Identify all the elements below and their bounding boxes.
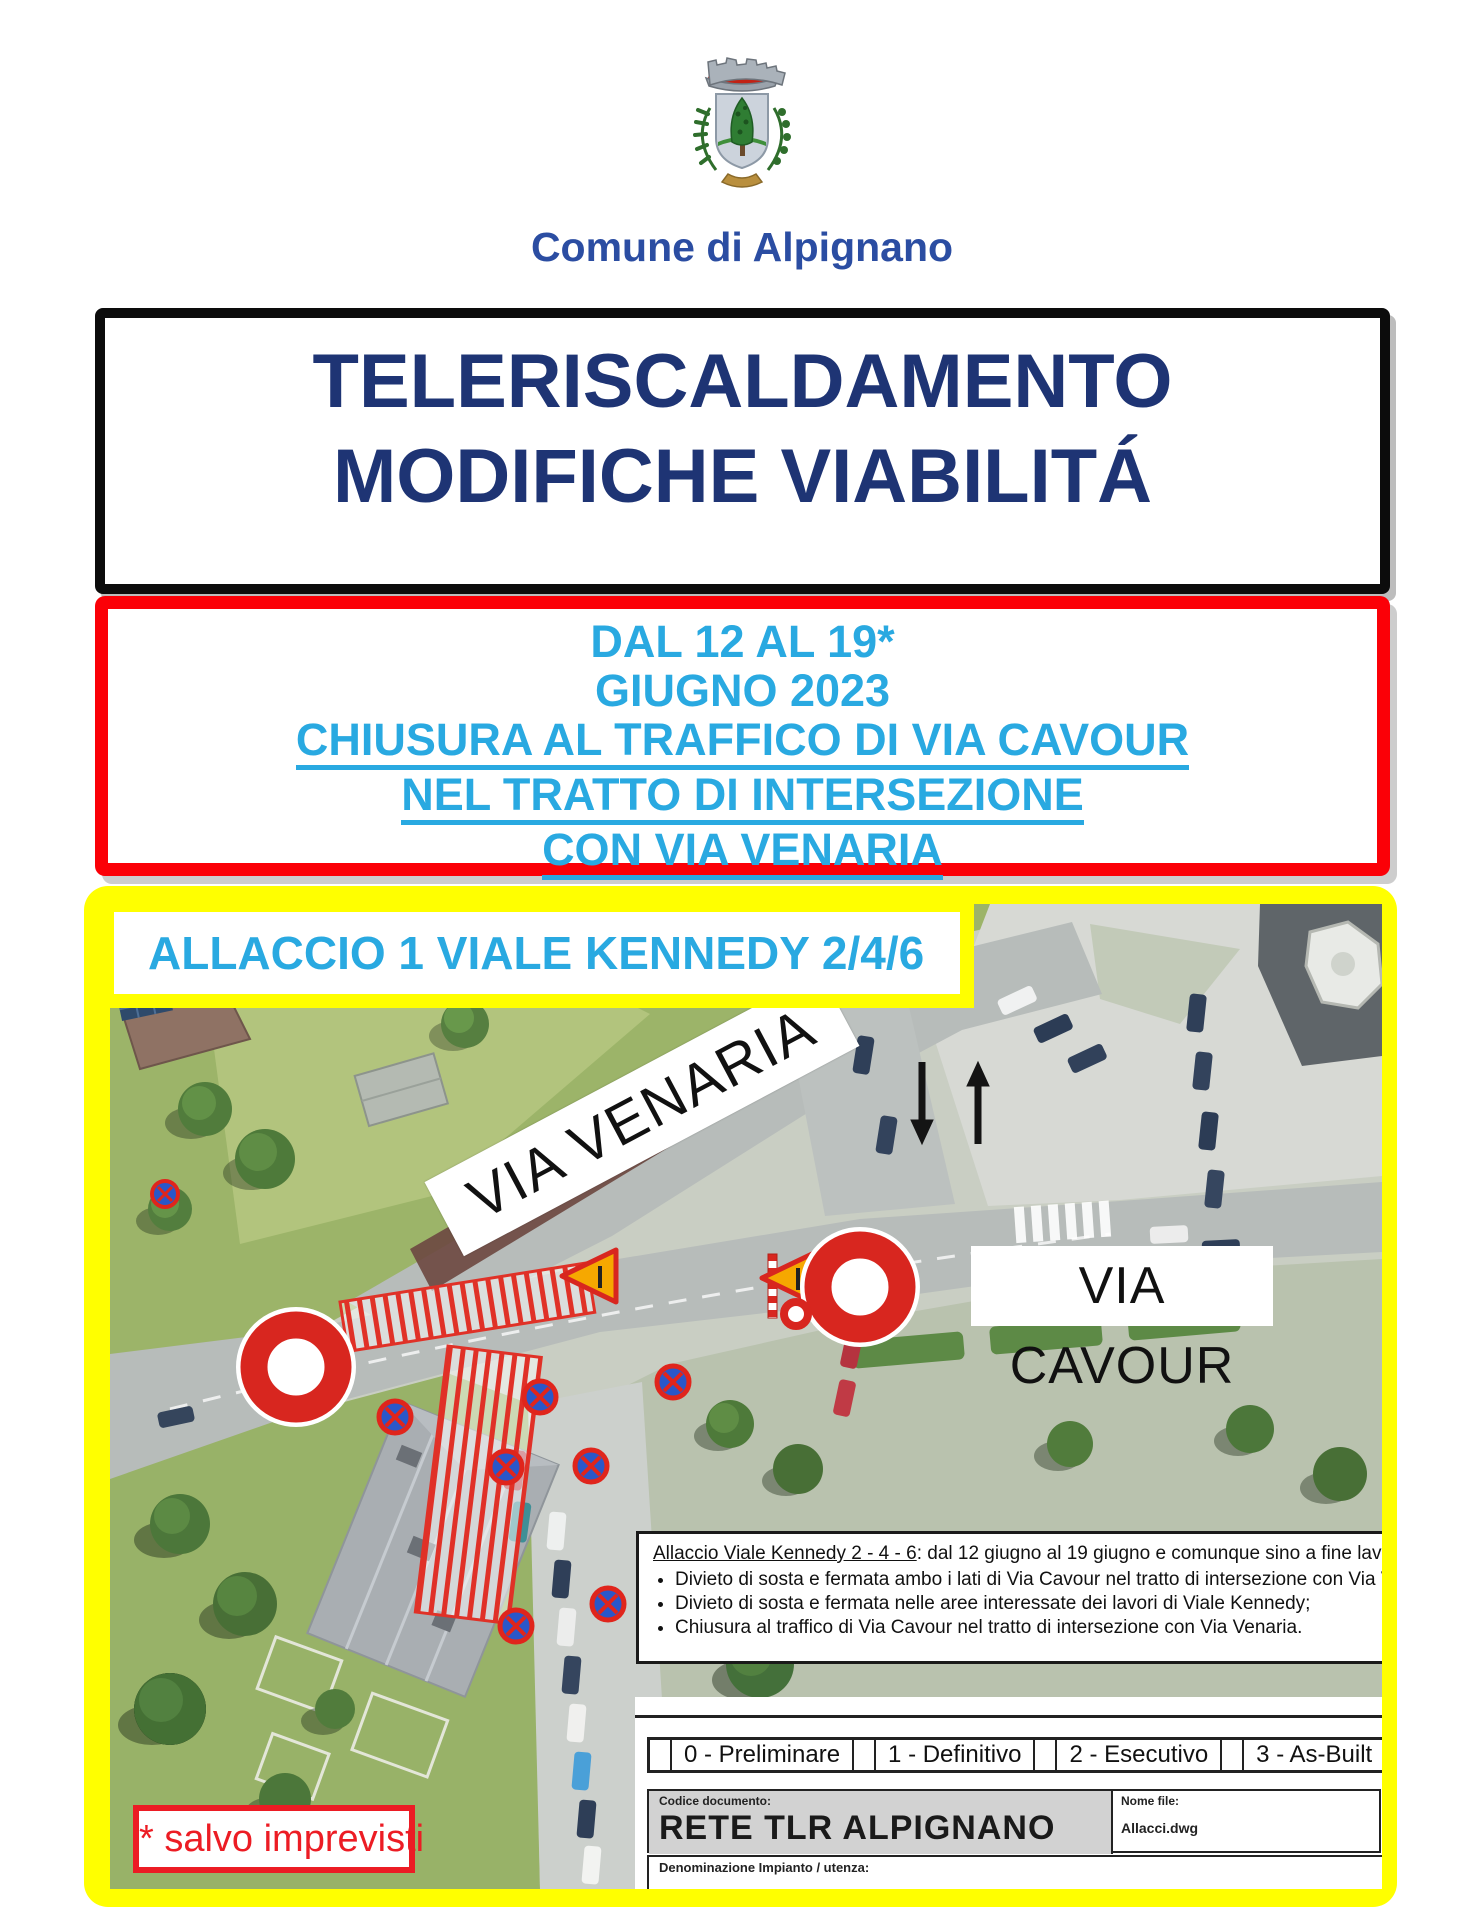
legend-bullet: Divieto di sosta e fermata ambo i lati d… (675, 1568, 1382, 1592)
file-name-value: Allacci.dwg (1121, 1820, 1379, 1836)
no-entry-sign-icon (239, 1310, 353, 1424)
legend-bullet-list: Divieto di sosta e fermata ambo i lati d… (675, 1568, 1382, 1640)
denomination-label: Denominazione Impianto / utenza: (659, 1860, 1382, 1875)
legend-heading: Allaccio Viale Kennedy 2 - 4 - 6: dal 12… (653, 1543, 1382, 1565)
street-label-via-cavour: VIA CAVOUR (971, 1246, 1273, 1326)
aerial-map: VIA VENARIA VIA CAVOUR ALLACCIO 1 VIALE … (110, 904, 1382, 1889)
notice-dates: DAL 12 AL 19* (108, 617, 1377, 666)
legend-bullet: Divieto di sosta e fermata nelle aree in… (675, 1592, 1382, 1616)
revision-checkbox-1 (854, 1740, 876, 1770)
revision-label-3: 3 - As-Built (1244, 1740, 1382, 1770)
revision-checkbox-3 (1222, 1740, 1244, 1770)
file-name-label: Nome file: (1121, 1794, 1379, 1808)
revision-checkbox-0 (650, 1740, 672, 1770)
notice-closure-line1: CHIUSURA AL TRAFFICO DI VIA CAVOUR (108, 715, 1377, 770)
revision-label-0: 0 - Preliminare (672, 1740, 854, 1770)
denomination-row: Denominazione Impianto / utenza: (647, 1855, 1382, 1889)
document-code-row: Codice documento: RETE TLR ALPIGNANO Nom… (647, 1789, 1381, 1853)
mural-crown-icon (706, 58, 785, 91)
ribbon-bow-icon (722, 174, 762, 187)
revision-label-1: 1 - Definitivo (876, 1740, 1035, 1770)
main-title-line2: MODIFICHE VIABILITÁ (105, 429, 1380, 524)
section-label: ALLACCIO 1 VIALE KENNEDY 2/4/6 (114, 912, 960, 994)
legend-bullet: Chiusura al traffico di Via Cavour nel t… (675, 1616, 1382, 1640)
shield-icon (716, 94, 768, 168)
notice-closure-line3: CON VIA VENARIA (108, 825, 1377, 880)
revision-status-row: 0 - Preliminare 1 - Definitivo 2 - Esecu… (647, 1737, 1382, 1773)
revision-checkbox-2 (1035, 1740, 1057, 1770)
notice-closure-line2: NEL TRATTO DI INTERSEZIONE (108, 770, 1377, 825)
no-entry-sign-icon (803, 1230, 917, 1344)
drawing-title-block: 0 - Preliminare 1 - Definitivo 2 - Esecu… (635, 1697, 1382, 1889)
main-title-box: TELERISCALDAMENTO MODIFICHE VIABILITÁ (95, 308, 1390, 594)
revision-label-2: 2 - Esecutivo (1057, 1740, 1222, 1770)
no-entry-sign-small-icon (784, 1302, 808, 1326)
footnote-box: * salvo imprevisti (133, 1805, 415, 1873)
alpignano-coat-of-arms-icon (672, 48, 812, 216)
map-section: VIA VENARIA VIA CAVOUR ALLACCIO 1 VIALE … (84, 886, 1397, 1907)
poster-page: Comune di Alpignano TELERISCALDAMENTO MO… (0, 0, 1484, 1920)
closure-notice-box: DAL 12 AL 19* GIUGNO 2023 CHIUSURA AL TR… (95, 596, 1390, 876)
document-code-label: Codice documento: (659, 1794, 1111, 1808)
file-name-cell: Nome file: Allacci.dwg (1113, 1791, 1379, 1851)
laurel-branch-icon (695, 108, 716, 170)
municipality-name: Comune di Alpignano (0, 224, 1484, 271)
main-title-line1: TELERISCALDAMENTO (105, 334, 1380, 429)
notice-month: GIUGNO 2023 (108, 666, 1377, 715)
document-code-value: RETE TLR ALPIGNANO (659, 1809, 1111, 1848)
legend-box: Allaccio Viale Kennedy 2 - 4 - 6: dal 12… (636, 1531, 1382, 1664)
document-code-cell: Codice documento: RETE TLR ALPIGNANO (649, 1791, 1113, 1854)
title-block-divider (635, 1715, 1382, 1718)
oak-branch-icon (768, 108, 791, 170)
